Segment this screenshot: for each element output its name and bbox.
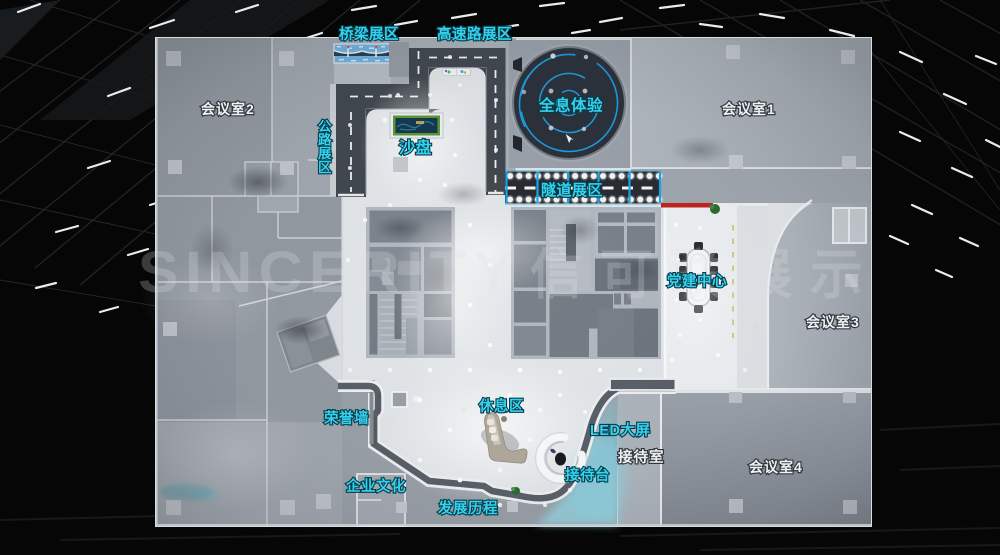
svg-text:高速路展区: 高速路展区 (437, 25, 512, 43)
svg-text:荣誉墙: 荣誉墙 (323, 409, 369, 427)
svg-text:隧道展区: 隧道展区 (541, 181, 603, 199)
svg-text:LED大屏: LED大屏 (590, 421, 651, 439)
svg-text:会议室1: 会议室1 (722, 101, 776, 117)
svg-text:发展历程: 发展历程 (437, 499, 498, 517)
svg-text:会议室3: 会议室3 (806, 314, 860, 330)
svg-text:全息体验: 全息体验 (538, 96, 603, 115)
svg-text:会议室2: 会议室2 (201, 101, 255, 117)
svg-text:接待室: 接待室 (618, 448, 665, 466)
svg-text:休息区: 休息区 (478, 397, 524, 415)
svg-text:会议室4: 会议室4 (749, 459, 803, 475)
svg-text:公路展区: 公路展区 (318, 119, 332, 175)
svg-text:SINCERITY: SINCERITY (138, 240, 520, 305)
svg-text:企业文化: 企业文化 (345, 477, 406, 495)
svg-text:党建中心: 党建中心 (667, 272, 727, 290)
svg-text:桥梁展区: 桥梁展区 (339, 25, 399, 43)
svg-text:接待台: 接待台 (565, 466, 610, 484)
svg-text:沙盘: 沙盘 (399, 138, 432, 157)
